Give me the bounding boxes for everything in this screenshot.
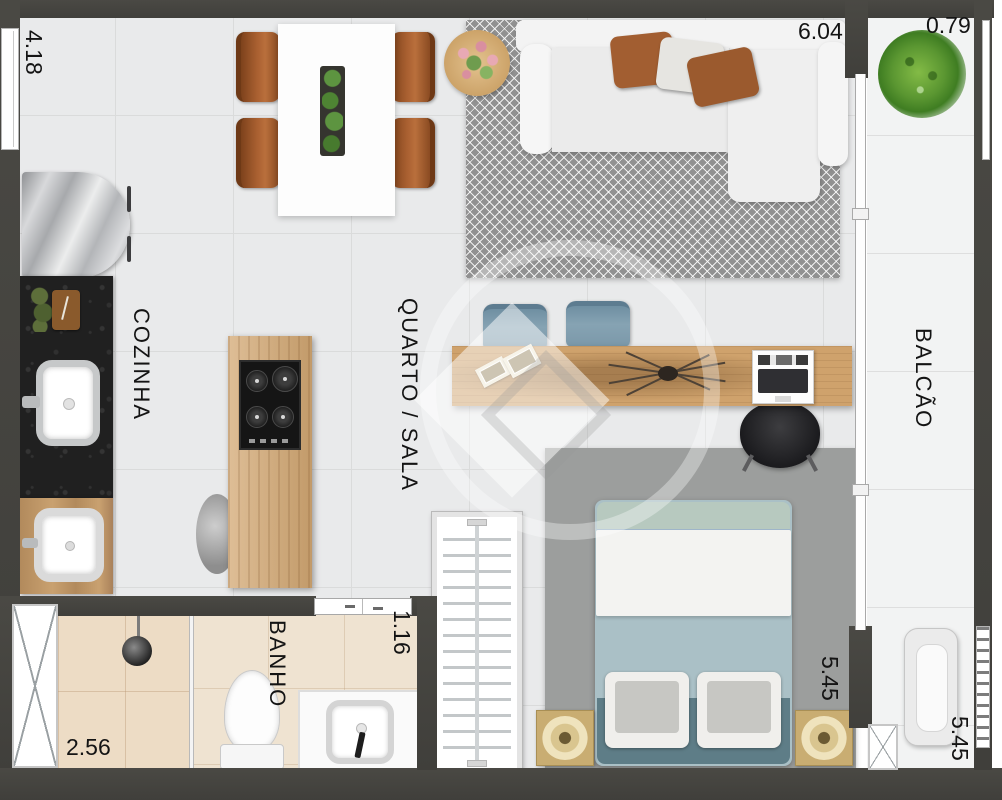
laundry-tub	[34, 508, 104, 582]
office-chair	[740, 402, 820, 468]
window-right	[982, 20, 990, 160]
flowers-icon	[452, 38, 504, 86]
dimension-living-width: 6.04	[798, 18, 843, 45]
laptop-keyboard	[758, 369, 808, 393]
sofa-armrest-left	[520, 44, 554, 154]
laptop-screen	[758, 355, 808, 365]
kitchen-faucet	[22, 396, 40, 408]
desk-chair	[483, 304, 547, 350]
window-balcony	[868, 724, 898, 770]
dining-chair	[391, 118, 435, 188]
burner-icon	[272, 366, 298, 392]
desk-chair	[566, 301, 630, 347]
laptop-trackpad	[775, 396, 791, 402]
wall-balcony-stub-top	[845, 0, 868, 78]
shower-head-icon	[122, 636, 152, 666]
bed-blanket	[596, 530, 791, 616]
wall-balcony-stub-bottom	[849, 626, 872, 728]
room-label-bathroom: BANHO	[264, 620, 290, 708]
nightstand	[795, 710, 853, 766]
dimension-balcony-width: 0.79	[926, 12, 971, 39]
dimension-bathroom-width: 2.56	[66, 734, 111, 761]
clothes-rack	[432, 512, 522, 774]
dining-chair	[391, 32, 435, 102]
branch-decor	[608, 344, 726, 406]
balcony-railing	[976, 626, 990, 748]
burner-icon	[272, 406, 294, 428]
wall-bottom	[0, 768, 1002, 800]
rack-end	[467, 760, 487, 767]
refrigerator	[22, 172, 130, 278]
toilet-tank	[220, 744, 284, 770]
cutting-board	[52, 290, 80, 330]
laundry-faucet	[22, 538, 38, 548]
bed-pillow	[697, 672, 781, 748]
potted-plant-icon	[878, 30, 966, 118]
window-shower	[12, 604, 58, 768]
balcony-glass-door	[855, 74, 866, 630]
dimension-bedroom-depth: 5.45	[816, 656, 843, 701]
fridge-handle	[127, 236, 131, 262]
nightstand	[536, 710, 594, 766]
kitchen-sink	[36, 360, 100, 446]
dining-chair	[236, 118, 280, 188]
burner-icon	[246, 406, 268, 428]
burner-icon	[246, 370, 268, 392]
dining-chair	[236, 32, 280, 102]
wall-bathroom-right	[417, 596, 437, 770]
vegetables-icon	[30, 286, 54, 332]
sofa-armrest-right	[818, 42, 848, 166]
cooktop	[239, 360, 301, 450]
cooktop-controls	[249, 439, 293, 443]
floor-plan: COZINHA QUARTO / SALA BALCÃO BANHO 4.18 …	[0, 0, 1002, 800]
glass-frame-joint	[852, 484, 869, 496]
dimension-balcony-depth: 5.45	[946, 716, 973, 761]
room-label-balcony: BALCÃO	[910, 328, 936, 429]
bed-foot-fold	[597, 502, 790, 532]
rack-rail	[475, 521, 479, 765]
shower-glass-divider	[189, 612, 194, 770]
rack-end	[467, 519, 487, 526]
laptop	[752, 350, 814, 404]
dimension-left-wall: 4.18	[20, 30, 47, 75]
fridge-handle	[127, 186, 131, 212]
wall-bathroom-top	[20, 596, 316, 616]
room-label-living: QUARTO / SALA	[396, 298, 422, 492]
dimension-bathroom-entry: 1.16	[388, 610, 415, 655]
room-label-kitchen: COZINHA	[128, 308, 154, 421]
branch-base	[658, 366, 678, 381]
window-left	[1, 28, 19, 150]
bed-pillow	[605, 672, 689, 748]
planter-centerpiece	[320, 66, 345, 156]
glass-frame-joint	[852, 208, 869, 220]
